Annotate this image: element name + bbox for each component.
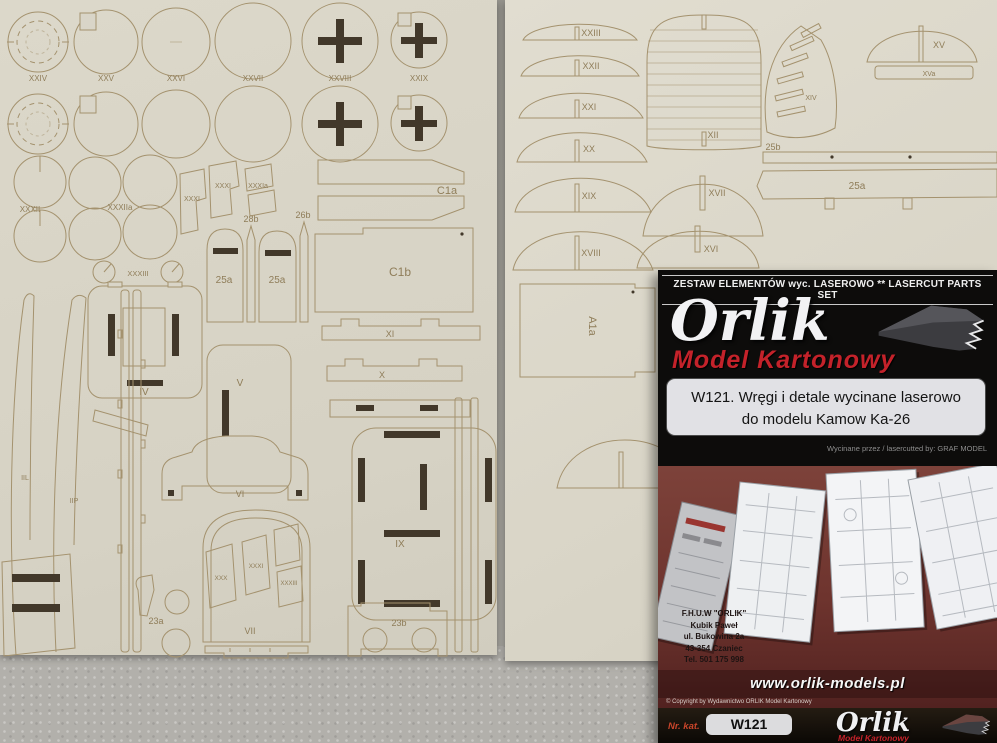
svg-text:A1a: A1a [586, 316, 598, 336]
part-frame-v: V [207, 345, 291, 493]
part-disc-xxvi: XXVI [142, 8, 210, 83]
part-disc-xxiv: XXIV [7, 12, 69, 83]
part-dome-xxiii: XXIII [523, 24, 637, 40]
address-line: F.H.U.W "ORLIK" [658, 608, 770, 620]
part-25a-strip: 25a [757, 169, 997, 209]
svg-text:23b: 23b [391, 618, 406, 628]
part-xxxi-group: XXXI XXXI XXXIa [180, 161, 276, 234]
eagle-icon-small [939, 712, 995, 739]
part-hook [136, 575, 154, 616]
part-longeron-iip: IIP [54, 295, 86, 652]
svg-text:XVIII: XVIII [581, 248, 601, 258]
brand-subtitle: Model Kartonowy [672, 346, 982, 375]
lasercut-sheet-left: XXIV XXV XXVI XXVII XXVIII [0, 0, 497, 655]
lasercut-credit: Wycinane przez / lasercutted by: GRAF MO… [827, 444, 987, 453]
svg-text:XVII: XVII [708, 188, 725, 198]
svg-text:VII: VII [244, 626, 255, 636]
part-base-bar [205, 646, 308, 658]
part-23b: 23b [348, 603, 447, 656]
part-bar-x: X [327, 359, 462, 381]
part-dome-xvii: XVII [643, 176, 763, 236]
product-title-box: W121. Wręgi i detale wycinane laserowo d… [666, 378, 986, 436]
part-edge-rails [455, 398, 478, 652]
address-line: 43-354 Czaniec [658, 643, 770, 655]
svg-text:XXVIII: XXVIII [329, 74, 352, 83]
part-dome-xx: XX [517, 133, 647, 162]
website-url: www.orlik-models.pl [658, 670, 997, 698]
svg-text:25b: 25b [765, 142, 780, 152]
part-25a-blades: 25a 28b 25a 26b [207, 210, 311, 322]
copyright-note: © Copyright by Wydawnictwo ORLIK Model K… [666, 699, 812, 705]
svg-text:XXII: XXII [582, 61, 599, 71]
svg-text:25a: 25a [269, 275, 286, 286]
svg-text:XXXI: XXXI [249, 563, 264, 570]
card-footer-bar: Nr. kat. W121 Orlik Model Kartonowy [658, 708, 997, 743]
part-longeron-iil: IIL [11, 294, 34, 655]
part-dome-xix: XIX [515, 178, 651, 212]
address-line: Kubik Paweł [658, 620, 770, 632]
svg-text:XIV: XIV [805, 95, 817, 102]
part-knobs-xxxiii: XXXIII [93, 261, 183, 283]
part-disc-row2 [7, 86, 447, 162]
part-frame-iv: IV [88, 282, 202, 398]
svg-text:XXXIII: XXXIII [127, 269, 148, 278]
svg-text:XXXII: XXXII [20, 205, 40, 214]
part-23a: 23a [148, 590, 190, 657]
svg-text:25a: 25a [849, 181, 866, 192]
part-25b-strip: 25b [763, 142, 997, 163]
svg-text:XXX: XXX [214, 575, 228, 582]
catalog-number-label: Nr. kat. [668, 721, 700, 732]
svg-text:C1b: C1b [389, 265, 411, 279]
svg-text:25a: 25a [216, 275, 233, 286]
left-sheet-parts: XXIV XXV XXVI XXVII XXVIII [0, 0, 497, 660]
svg-text:XI: XI [386, 329, 395, 339]
part-disc-xxvii: XXVII [215, 3, 291, 83]
svg-text:XXXIII: XXXIII [280, 581, 297, 587]
part-disc-xxv: XXV [74, 10, 138, 83]
part-dome-xxi: XXI [519, 93, 643, 118]
svg-text:IIL: IIL [21, 475, 29, 482]
part-frame-ix: IX [352, 428, 496, 620]
brand-logo-text: Orlik [670, 288, 830, 354]
product-card: ZESTAW ELEMENTÓW wyc. LASEROWO ** LASERC… [658, 270, 997, 743]
part-xii: XII [647, 15, 761, 150]
svg-text:XXXI: XXXI [184, 196, 200, 203]
svg-text:XXV: XXV [98, 74, 115, 83]
svg-text:XXIX: XXIX [410, 74, 429, 83]
svg-text:X: X [379, 370, 385, 380]
part-slotted-plate [2, 554, 75, 656]
svg-text:XXI: XXI [582, 102, 597, 112]
product-title-line2: do modelu Kamow Ka-26 [667, 409, 985, 431]
part-dome-xvi: XVI [637, 226, 759, 268]
svg-text:XV: XV [933, 40, 945, 50]
svg-text:C1a: C1a [437, 185, 458, 197]
part-disc-xxviii: XXVIII [302, 3, 378, 83]
product-title-line1: W121. Wręgi i detale wycinane laserowo [667, 387, 985, 409]
svg-text:XXXI: XXXI [215, 183, 231, 190]
svg-text:23a: 23a [148, 616, 163, 626]
svg-text:26b: 26b [295, 210, 310, 220]
svg-text:XXIV: XXIV [29, 74, 48, 83]
svg-text:XXVI: XXVI [167, 74, 185, 83]
part-dome-xxii: XXII [521, 56, 639, 76]
part-disc-xxix: XXIX [391, 12, 447, 83]
part-bar-xi: XI [322, 319, 480, 340]
svg-text:XXXIa: XXXIa [248, 183, 268, 190]
svg-text:XX: XX [583, 144, 595, 154]
svg-text:28b: 28b [243, 214, 258, 224]
photo-lasercut-sheets: XXIV XXV XXVI XXVII XXVIII [0, 0, 997, 743]
part-a1a: A1a [520, 284, 655, 377]
part-frame-vi: VI [162, 436, 308, 500]
part-xv: XV XVa [867, 26, 977, 79]
svg-text:V: V [237, 378, 244, 389]
svg-text:IX: IX [395, 539, 405, 550]
card-middle-section: F.H.U.W "ORLIK" Kubik Paweł ul. Bukowina… [658, 466, 997, 708]
publisher-address: F.H.U.W "ORLIK" Kubik Paweł ul. Bukowina… [658, 608, 770, 666]
svg-text:XXXIIa: XXXIIa [108, 203, 133, 212]
footer-brand-subtitle: Model Kartonowy [838, 733, 909, 743]
svg-text:XII: XII [707, 130, 718, 140]
part-comb-strips [118, 290, 145, 652]
address-line: Tel. 501 175 998 [658, 654, 770, 666]
svg-text:XXIII: XXIII [581, 28, 601, 38]
svg-text:XXVII: XXVII [243, 74, 263, 83]
catalog-number-value: W121 [706, 714, 792, 735]
address-line: ul. Bukowina 2a [658, 631, 770, 643]
part-frame-vii: VII XXX XXXI XXXIII [203, 510, 310, 642]
svg-text:VI: VI [236, 489, 245, 499]
svg-text:XVa: XVa [923, 71, 936, 78]
svg-text:XIX: XIX [582, 191, 597, 201]
part-bar-plain [330, 400, 470, 417]
part-c1b: C1b [315, 228, 473, 312]
part-xiv-crescent: XIV [765, 24, 836, 138]
part-disc-xxxii-group: XXXII XXXIIa [14, 155, 177, 262]
part-dome-xviii: XVIII [513, 232, 653, 270]
svg-text:IIP: IIP [70, 498, 79, 505]
part-c1a: C1a [318, 160, 464, 220]
svg-text:XVI: XVI [704, 244, 719, 254]
